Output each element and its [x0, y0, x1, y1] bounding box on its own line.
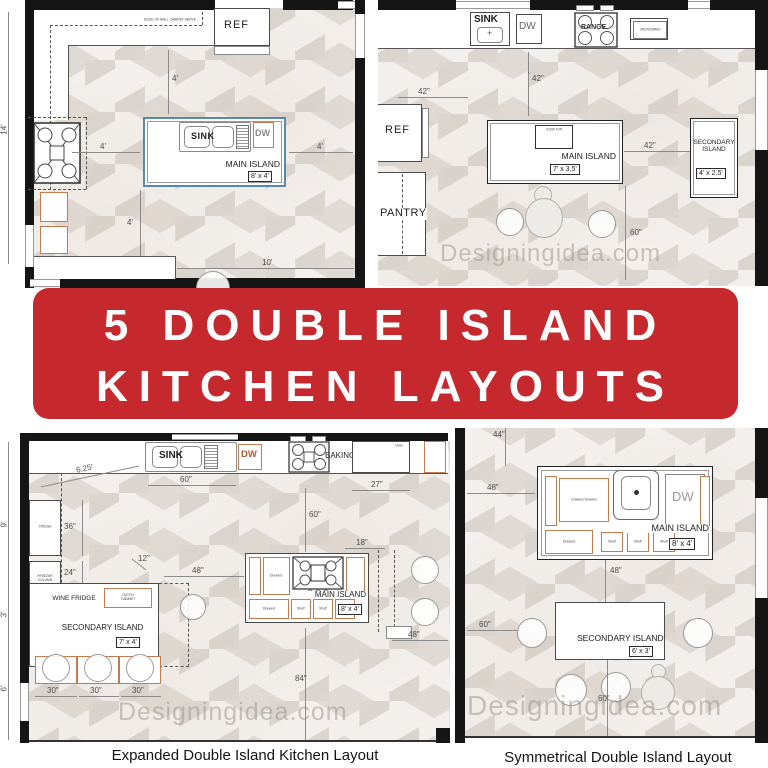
dimension-label: 4'	[100, 142, 106, 151]
dimension-line	[467, 630, 517, 631]
dimension-line	[352, 490, 410, 491]
secondary-island-label: SECONDARY ISLAND	[693, 140, 735, 154]
main-island-label: MAIN ISLAND	[200, 160, 280, 169]
hutch-label-wrap: HUTCH CABINET	[104, 588, 152, 608]
island-size-badge: 7' x 3.5'	[550, 164, 580, 175]
wall-segment	[455, 428, 465, 743]
fridge-label: FRIDGE	[39, 525, 51, 528]
island-size-badge: 8' x 4'	[669, 538, 695, 550]
watermark: Designingidea.com	[440, 240, 661, 268]
sink-label: SINK	[474, 15, 498, 26]
dishwasher-label: DW	[255, 129, 270, 138]
dimension-label: 30"	[47, 686, 59, 695]
cooktop-label: COOKTOP	[546, 128, 562, 131]
dimension-line	[345, 548, 385, 549]
stool	[517, 618, 547, 648]
stool	[588, 210, 616, 238]
cooktop-dashed-outline	[28, 189, 86, 190]
wall-segment	[25, 0, 215, 10]
counter	[422, 108, 429, 158]
wall-oven	[40, 226, 68, 254]
shelf-label-wrap: Shelf	[601, 532, 623, 552]
dimension-label: 60"	[180, 475, 192, 484]
dimension-label: 12"	[138, 554, 150, 563]
dimension-line	[177, 268, 354, 269]
window	[25, 225, 34, 267]
edge-of-wall-dashed-line	[202, 12, 203, 25]
cooktop-dashed-outline	[28, 117, 86, 118]
main-island-label: MAIN ISLAND	[300, 591, 366, 599]
island-size-badge: 4' x 2.5'	[696, 168, 726, 179]
island-cabinet	[249, 557, 261, 595]
wall-segment	[710, 0, 756, 10]
oven-label: Oven	[395, 444, 403, 447]
plan-top-right: SINK + DW RANGE MICROWAVE REF PANTRY 42"	[378, 0, 768, 286]
dimension-line	[392, 640, 448, 641]
dimension-label: 6'	[0, 686, 8, 692]
dimension-line	[505, 428, 506, 466]
window	[20, 683, 29, 721]
dimension-label: 30"	[90, 686, 102, 695]
dishwasher-label: DW	[519, 22, 536, 33]
fridge-label-wrap: FRIDGE	[29, 522, 61, 532]
faucet-mark: +	[487, 29, 492, 38]
watermark: Designingidea.com	[118, 698, 348, 727]
dimension-line	[398, 97, 468, 98]
caption-symmetrical: Symmetrical Double Island Layout	[478, 749, 758, 766]
dimension-label: 48"	[408, 630, 420, 639]
island-size-badge: 8' x 4'	[248, 171, 272, 182]
plan-bottom-left: 9' 3' 6' SINK DW BAKING AREA Oven	[0, 428, 450, 750]
dimension-label: 60"	[479, 620, 491, 629]
drawers-label-wrap: Drawers	[249, 599, 289, 619]
dimension-label: 18"	[356, 538, 368, 547]
edge-note: EDGE OF WALL CABINET ABOVE	[138, 15, 202, 24]
window	[30, 279, 60, 287]
counter	[214, 46, 270, 55]
dimension-line	[72, 152, 140, 153]
counter	[378, 10, 755, 49]
secondary-island	[690, 118, 738, 198]
cabinet-depth-dashed	[61, 473, 62, 598]
dimension-line	[289, 152, 353, 153]
faucet-dot	[634, 490, 639, 495]
window	[355, 14, 365, 58]
person-figure	[525, 198, 563, 238]
counter	[34, 45, 69, 120]
wine-fridge-label: WINE FRIDGE	[52, 596, 96, 603]
stool	[496, 208, 524, 236]
banner-line-1: 5 DOUBLE ISLAND	[33, 301, 738, 351]
dimension-label: 48"	[487, 483, 499, 492]
island-cabinet	[700, 476, 710, 526]
island-size-badge: 8' x 4'	[338, 604, 362, 615]
microwave-label-wrap: MICROWAVE	[633, 21, 667, 39]
dimension-line	[35, 696, 77, 697]
dimension-line	[624, 151, 690, 152]
main-island-label: MAIN ISLAND	[623, 524, 709, 533]
sink-basin	[180, 446, 202, 468]
dimension-label: 48"	[192, 566, 204, 575]
caption-expanded: Expanded Double Island Kitchen Layout	[75, 747, 415, 764]
dimension-line	[605, 560, 606, 602]
shelf-label-wrap: Shelf	[313, 599, 333, 619]
vent-detail	[576, 5, 594, 11]
counter	[34, 256, 176, 279]
dimension-label: 4'	[317, 142, 323, 151]
freezer-label: FREEZER COLUMN	[36, 575, 54, 582]
dishwasher-label: DW	[672, 490, 694, 504]
wall-line	[465, 736, 755, 738]
refrigerator-label: REF	[385, 125, 410, 137]
wall-oven	[40, 192, 68, 222]
secondary-island-label: SECONDARY ISLAND	[577, 634, 659, 643]
vent-detail	[600, 5, 614, 11]
dimension-line	[148, 485, 236, 486]
dimension-label: 3'	[0, 612, 8, 618]
range-label: RANGE	[581, 24, 606, 31]
island-cabinet	[545, 476, 557, 526]
dimension-line	[79, 696, 119, 697]
stool	[411, 598, 439, 626]
range-icon	[288, 441, 330, 473]
dimension-label: 10'	[262, 258, 272, 267]
stool	[42, 654, 70, 682]
dimension-label: 42"	[418, 87, 430, 96]
cabinet-dashed	[378, 550, 379, 632]
dimension-label: 84"	[295, 674, 307, 683]
drawers-label-wrap: Drawers	[545, 530, 593, 554]
dimension-line	[82, 500, 83, 556]
dimension-line	[164, 576, 244, 577]
dimension-line	[467, 493, 535, 494]
watermark: Designingidea.com	[467, 690, 722, 722]
drainboard	[204, 445, 218, 469]
secondary-island-label: SECONDARY ISLAND	[50, 624, 155, 632]
cooktop-label-wrap: COOKTOP	[535, 126, 573, 133]
oven-label-wrap: Oven	[390, 442, 408, 449]
dimension-label: 30"	[132, 686, 144, 695]
cooktop-icon	[33, 122, 81, 184]
wall-line	[29, 740, 450, 742]
dishwasher-label: DW	[241, 450, 257, 460]
stool	[126, 654, 154, 682]
plan-top-left: 14' EDGE OF WALL CABINET ABOVE REF 4'	[0, 0, 372, 288]
island-size-badge: 7' x 4'	[116, 637, 140, 648]
pantry-label: PANTRY	[380, 208, 427, 220]
wall-segment	[378, 0, 456, 10]
dimension-label: 14'	[0, 124, 9, 134]
dimension-label: 48"	[610, 566, 622, 575]
dimension-label: 4'	[172, 74, 178, 83]
shelf-label-wrap: Shelf	[291, 599, 311, 619]
tall-cabinet	[424, 441, 446, 473]
kitchen-layouts-infographic: 14' EDGE OF WALL CABINET ABOVE REF 4'	[0, 0, 768, 768]
cooktop-dashed-outline	[86, 117, 87, 189]
sink-basin	[212, 126, 234, 148]
dimension-label: 24"	[64, 568, 76, 577]
edge-of-wall-dashed-line	[50, 25, 202, 26]
drawers-label-wrap: Drawers Drawers	[559, 478, 609, 522]
banner-line-2: KITCHEN LAYOUTS	[33, 362, 738, 412]
main-island-label: MAIN ISLAND	[528, 152, 616, 161]
plan-bottom-right: 44" Drawers Drawers DW Drawers Shelf She…	[455, 428, 768, 743]
dimension-label: 9'	[0, 522, 8, 528]
dimension-label: 44"	[493, 430, 505, 439]
window	[172, 434, 238, 440]
window	[755, 498, 768, 598]
dimension-label: 42"	[644, 141, 656, 150]
stool	[683, 618, 713, 648]
dimension-line	[168, 50, 169, 114]
sink-label: SINK	[191, 132, 215, 141]
dimension-line	[305, 488, 306, 552]
stool	[84, 654, 112, 682]
title-banner: 5 DOUBLE ISLAND KITCHEN LAYOUTS	[33, 288, 738, 419]
dimension-label: 27"	[371, 480, 383, 489]
window	[755, 70, 768, 150]
dimension-line	[528, 52, 529, 116]
drainboard	[236, 125, 249, 149]
dimension-label: 36"	[64, 522, 76, 531]
dimension-line	[121, 696, 161, 697]
dimension-label: 60"	[309, 510, 321, 519]
vent-detail	[312, 436, 326, 442]
cabinet-dashed	[394, 550, 395, 632]
dimension-line	[140, 190, 141, 256]
refrigerator-label: REF	[224, 20, 249, 32]
sink-label: SINK	[159, 451, 183, 462]
window	[456, 1, 530, 9]
microwave-label: MICROWAVE	[640, 28, 660, 31]
island-size-badge: 6' x 3'	[629, 646, 653, 657]
dimension-label: 4'	[127, 218, 133, 227]
dimension-line	[8, 12, 9, 264]
vent-detail	[290, 436, 306, 442]
stool	[411, 556, 439, 584]
dimension-line	[8, 442, 9, 740]
window	[688, 1, 710, 9]
dimension-label: 60"	[630, 228, 642, 237]
dimension-label: 42"	[532, 74, 544, 83]
shelf-label-wrap: Shelf	[627, 532, 649, 552]
wall-segment	[436, 728, 450, 743]
stool	[180, 594, 206, 620]
drawers-label-wrap: Drawers	[263, 557, 290, 595]
hutch-label: HUTCH CABINET	[115, 594, 141, 601]
